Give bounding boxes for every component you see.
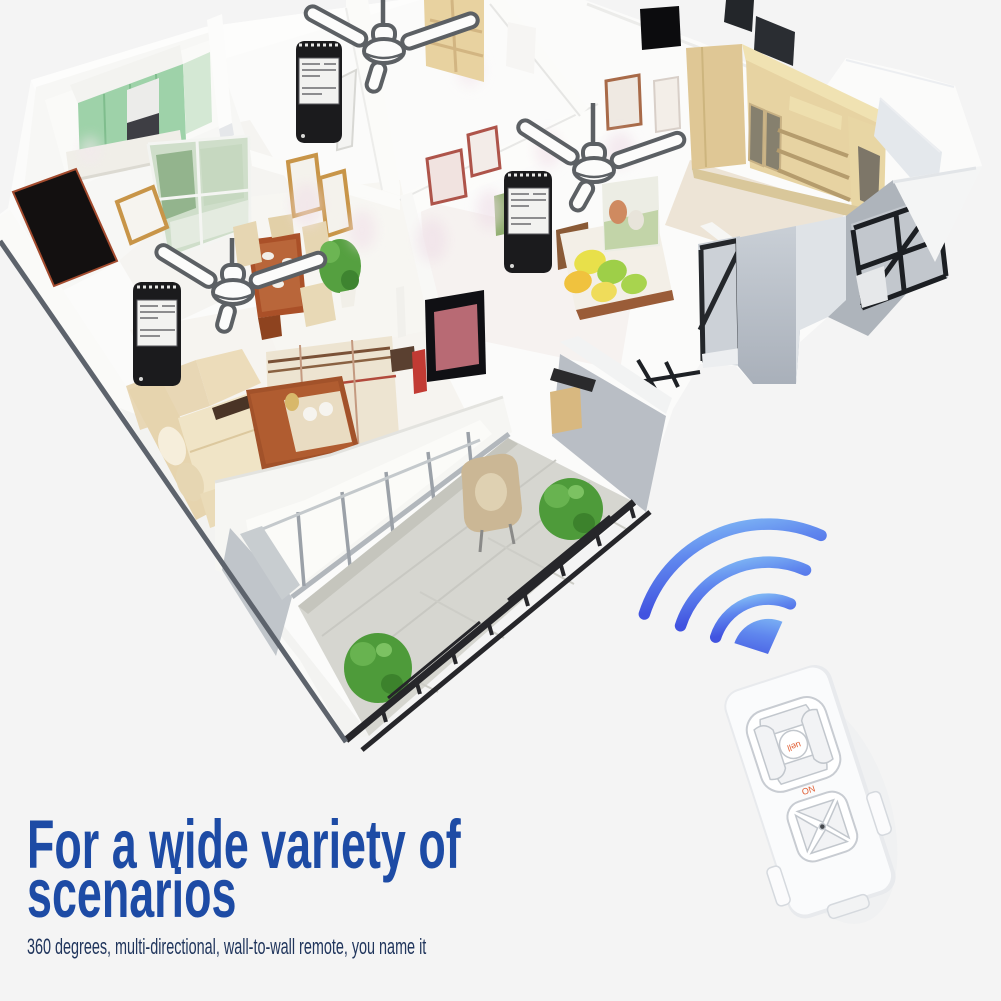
svg-text:360 degrees, multi-directional: 360 degrees, multi-directional, wall-to-… <box>27 934 427 959</box>
svg-text:scenarios: scenarios <box>27 855 236 932</box>
